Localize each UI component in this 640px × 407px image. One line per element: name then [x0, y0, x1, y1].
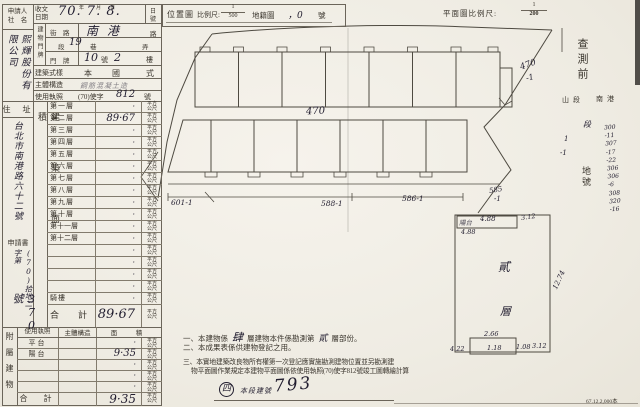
location-scale-denominator: 500: [222, 13, 244, 19]
floor-label: 第十層: [47, 209, 95, 220]
divider: [33, 65, 162, 66]
floor-value: ·: [95, 221, 141, 232]
area-unit-label: 平方 公尺: [141, 349, 162, 359]
area-unit-label: 平方 公尺: [141, 233, 162, 244]
structure-label: 主體構造: [35, 80, 63, 90]
month-unit: 月: [96, 4, 101, 11]
floor-unit: 樓: [146, 55, 153, 65]
area-unit-label: 平方 公尺: [141, 269, 162, 280]
building-number-circle: 四: [219, 382, 234, 397]
building-number-value: 793: [273, 373, 313, 396]
area-unit-label: 平方 公尺: [141, 305, 162, 327]
area-unit-label: 平方 公尺: [141, 149, 162, 160]
alley-label: 弄: [142, 41, 149, 51]
attached-structure-cell: [58, 349, 96, 359]
floor-row: 第六層·平方 公尺: [47, 161, 162, 173]
survey-section-char: 段: [583, 119, 591, 130]
print-code: 67.12.2,000本: [586, 397, 618, 405]
cadastral-hand-mark: ，0: [288, 8, 303, 21]
floor-value: ·: [95, 233, 141, 244]
inset-floor-char-2: 層: [500, 303, 511, 319]
divider: [33, 78, 162, 79]
location-map-title: 位置圖: [167, 9, 194, 20]
attached-structure-cell: [58, 338, 96, 348]
residence-label: 住 址: [2, 104, 33, 115]
attached-label: [17, 360, 58, 370]
floor-label: 第十一層: [47, 221, 95, 232]
area-unit-label: 平方 公尺: [141, 338, 162, 348]
lot-number-s: 588-1: [321, 199, 343, 208]
section-label: 段: [58, 41, 65, 51]
underline: [166, 22, 332, 23]
attached-value: ·: [96, 382, 141, 392]
area-unit-label: 平方 公尺: [141, 293, 162, 304]
floor-label: [47, 257, 95, 268]
total-label: 合 計: [47, 305, 95, 327]
area-unit-label: 平方 公尺: [141, 161, 162, 172]
floor-label: [47, 269, 95, 280]
area-unit-label: 平方 公尺: [141, 360, 162, 370]
applicant-name: 熙輝股份有限公司: [5, 34, 31, 96]
floor-value: ·: [95, 293, 141, 304]
applicant-label-line2: 社 名: [2, 16, 33, 25]
area-unit-label: 平方 公尺: [141, 221, 162, 232]
survey-section-name-2: 南港: [596, 94, 618, 104]
plan-scale-numerator: 1: [522, 2, 546, 8]
floor-value: ·: [95, 101, 141, 112]
plan-scale-denominator: 200: [522, 11, 546, 17]
floor-row: 第三層·平方 公尺: [47, 125, 162, 137]
attached-total-value: 9·35: [96, 393, 141, 406]
attached-value: ·: [96, 371, 141, 381]
style-v2: 國: [112, 68, 120, 79]
license-number: 812: [116, 89, 135, 100]
floor-label: 第一層: [47, 101, 95, 112]
attached-value: ·: [96, 360, 141, 370]
floor-row: 第五層·平方 公尺: [47, 149, 162, 161]
lot-number-label: 地號: [580, 166, 593, 198]
attached-row: ·平方 公尺: [17, 382, 162, 393]
lot-number-se: 586-1: [402, 194, 424, 203]
attached-structure-cell: [58, 360, 96, 370]
received-no-mark: 號: [150, 14, 156, 23]
attached-total-row: 合 計 9·35 平方 公尺: [17, 393, 162, 406]
floor-label: 騎樓: [47, 293, 95, 304]
residence-value: 台北市南港路六十二號: [11, 121, 24, 235]
floor-value: ·: [95, 185, 141, 196]
area-unit-label: 平方 公尺: [141, 137, 162, 148]
floor-value: ·: [95, 173, 141, 184]
floors-total-row: 合 計 89·67 平方 公尺: [47, 305, 162, 327]
attached-value: ·: [96, 338, 141, 348]
floor-row: 第十層·平方 公尺: [47, 209, 162, 221]
attached-header-license: 使用執照: [17, 327, 58, 337]
floor-row: 第一層·平方 公尺: [47, 101, 162, 113]
attached-header-area: 面 積: [96, 327, 162, 337]
note-1-hand-level: 貳: [319, 331, 328, 344]
cadastral-number-suffix: 號: [318, 10, 326, 21]
inset-top-width: 4.88: [480, 215, 496, 223]
total-value: 89·67: [95, 305, 141, 327]
balcony-note: 陽台: [459, 217, 472, 227]
inset-floor-char-1: 貳: [498, 258, 510, 275]
application-label: 申請書: [4, 238, 32, 248]
applicant-label: 申請人 社 名: [2, 7, 33, 25]
survey-mark-2: -1: [560, 149, 567, 157]
area-unit-label: 平方 公尺: [141, 382, 162, 392]
floor-value: ·: [95, 245, 141, 256]
floor-row: ·平方 公尺: [47, 257, 162, 269]
floor-row: 第十二層·平方 公尺: [47, 233, 162, 245]
inset-bottom-far-dim: 3.12: [532, 342, 546, 350]
area-unit-label: 平方 公尺: [141, 209, 162, 220]
attached-header-structure: 主體構造: [58, 327, 96, 337]
attached-label: 陽台: [17, 349, 58, 359]
floor-value: ·: [95, 125, 141, 136]
floor-label: 第五層: [47, 149, 95, 160]
cadastral-map-label: 地籍圖: [252, 10, 275, 21]
inset-bottom-left-dim: 4.22: [450, 345, 464, 353]
floor-value: ·: [95, 209, 141, 220]
floor-value: 89·67: [95, 113, 141, 124]
inset-left-width: 4.88: [461, 228, 475, 236]
inset-bottom-right-dim: 1.08: [516, 343, 530, 351]
received-date-label: 收文日期: [35, 6, 52, 22]
divider: [145, 4, 146, 23]
floor-row: ·平方 公尺: [47, 269, 162, 281]
divider: [2, 117, 33, 118]
attached-header-row: 使用執照 主體構造 面 積: [17, 327, 162, 338]
survey-mark-1: 1: [564, 135, 568, 143]
floor-label: 第十二層: [47, 233, 95, 244]
year-unit: 年: [79, 4, 84, 11]
door-unit: 號: [101, 55, 108, 65]
lot-number-e-sub: -1: [494, 195, 501, 203]
style-label: 建築式樣: [35, 68, 63, 78]
floor-value: ·: [95, 197, 141, 208]
floor-label: [47, 245, 95, 256]
attached-label: [17, 371, 58, 381]
underline: [214, 400, 394, 401]
area-unit-label: 平方 公尺: [141, 257, 162, 268]
floor-value: ·: [95, 137, 141, 148]
street-label: 街 路: [50, 27, 70, 37]
lot-number-sw: 601-1: [171, 198, 193, 207]
floor-row: 第九層·平方 公尺: [47, 197, 162, 209]
floor-label: 第二層: [47, 113, 95, 124]
floor-row: 第八層·平方 公尺: [47, 185, 162, 197]
attached-label: 平台: [17, 338, 58, 348]
lane-label: 巷: [90, 41, 97, 51]
floor-value: ·: [95, 281, 141, 292]
floor-row: ·平方 公尺: [47, 245, 162, 257]
area-unit-label: 平方 公尺: [141, 125, 162, 136]
floor-value: ·: [95, 269, 141, 280]
area-unit-label: 平方 公尺: [141, 393, 162, 406]
building-number-label: 本段建號: [240, 386, 272, 396]
location-scale-label: 比例尺:: [197, 10, 220, 20]
street-value: 南港: [86, 22, 128, 39]
divider: [45, 23, 46, 65]
floor-row: ·平方 公尺: [47, 281, 162, 293]
attached-structure-cell: [58, 393, 96, 406]
floor-label: 第三層: [47, 125, 95, 136]
attached-row: 平台·平方 公尺: [17, 338, 162, 349]
door-label: 門 牌: [50, 55, 70, 65]
area-unit-label: 平方 公尺: [141, 281, 162, 292]
style-v1: 本: [84, 68, 92, 79]
note-line-2: 二、本成果表係供建物登記之用。: [183, 342, 296, 353]
attached-side-label: 附屬建物: [4, 332, 15, 404]
floor-row: 第二層89·67平方 公尺: [47, 113, 162, 125]
road-lot-number: 470: [306, 106, 326, 118]
section-value: 19: [69, 37, 82, 48]
floor-value: ·: [95, 161, 141, 172]
floor-label: 第七層: [47, 173, 95, 184]
floor-row: 第四層·平方 公尺: [47, 137, 162, 149]
floor-label: 第六層: [47, 161, 95, 172]
floor-row: 第十一層·平方 公尺: [47, 221, 162, 233]
area-unit-label: 平方 公尺: [141, 101, 162, 112]
street-suffix: 路: [150, 28, 157, 38]
floor-label: 第八層: [47, 185, 95, 196]
area-unit-label: 平方 公尺: [141, 173, 162, 184]
area-unit-label: 平方 公尺: [141, 197, 162, 208]
area-unit-label: 平方 公尺: [141, 245, 162, 256]
plan-scale-label: 平面圖比例尺:: [443, 8, 497, 19]
floor-row: 騎樓·平方 公尺: [47, 293, 162, 305]
area-unit-label: 平方 公尺: [141, 185, 162, 196]
survey-section-name-1: 山段: [562, 95, 584, 105]
divider: [45, 51, 162, 52]
lower-building-row: [168, 120, 500, 184]
attached-row: ·平方 公尺: [17, 371, 162, 382]
inset-bottom-mid-dim: 1.18: [487, 344, 501, 352]
divider: [2, 29, 33, 30]
survey-form-sheet: 申請人 社 名 熙輝股份有限公司 收文日期 70. 7. 8. 年 月 日 日 …: [0, 0, 640, 407]
floor-value: ·: [95, 149, 141, 160]
area-unit-label: 平方 公尺: [141, 371, 162, 381]
floor-row: 第七層·平方 公尺: [47, 173, 162, 185]
boundary-lines: [158, 25, 552, 213]
floor-label: 第九層: [47, 197, 95, 208]
inset-bottom-top-dim: 2.66: [484, 330, 498, 338]
floor-label: [47, 281, 95, 292]
note-1-text-c: 層部份。: [332, 333, 362, 344]
upper-building-row: [195, 47, 512, 107]
attached-total-label: 合 計: [17, 393, 58, 406]
area-unit-label: 平方 公尺: [141, 113, 162, 124]
floor-value: ·: [95, 257, 141, 268]
door-number: 10: [84, 51, 98, 64]
attached-label: [17, 382, 58, 392]
attached-row: ·平方 公尺: [17, 360, 162, 371]
floor-label: 第四層: [47, 137, 95, 148]
door-floor: 2: [114, 51, 121, 64]
day-unit: 日: [110, 4, 115, 11]
attached-row: 陽台9·35平方 公尺: [17, 349, 162, 360]
location-scale-numerator: 1: [222, 4, 244, 10]
attached-value: 9·35: [96, 349, 141, 359]
attached-structure-cell: [58, 382, 96, 392]
scan-edge-artifact: [635, 0, 640, 85]
address-plate-side-label: 建物門牌: [35, 26, 44, 64]
attached-structure-cell: [58, 371, 96, 381]
style-v3: 式: [146, 68, 154, 79]
note-line-4: 物平面圖作業規定本建物平面圖係依使用執照(70)使字812號竣工圖轉繪計算: [191, 365, 583, 375]
survey-title: 查測前: [574, 38, 590, 98]
applicant-label-line1: 申請人: [2, 7, 33, 16]
application-number: 370號: [9, 293, 38, 329]
